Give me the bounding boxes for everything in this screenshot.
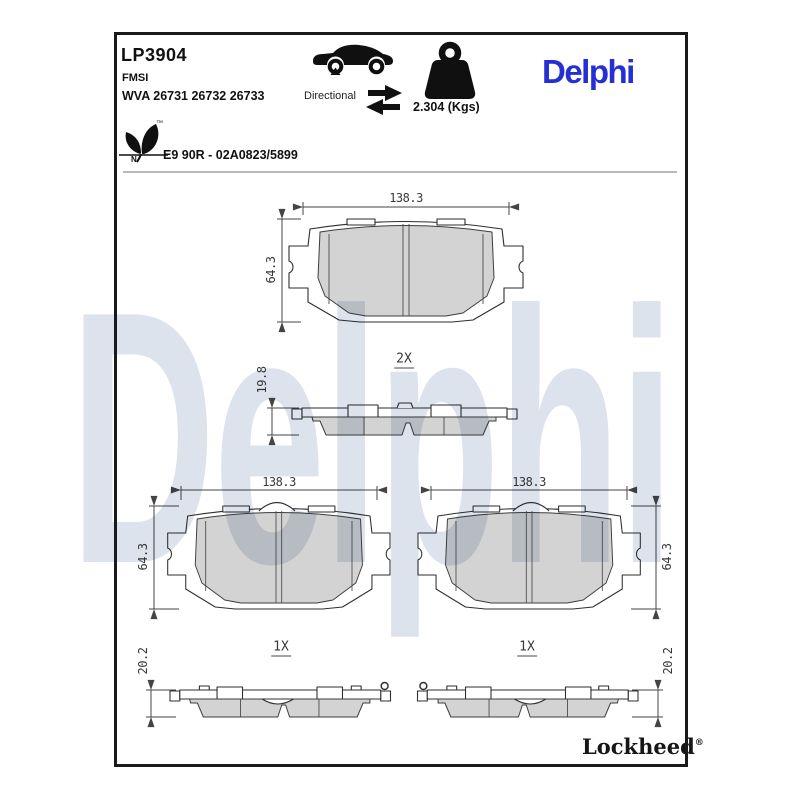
pad-side-view-left [146, 683, 391, 718]
technical-drawing [0, 0, 800, 800]
dim-width-left: 138.3 [262, 475, 296, 489]
dim-height-right: 64.3 [660, 544, 674, 571]
qty-label-right: 1X [517, 640, 537, 657]
dim-height-top: 64.3 [264, 257, 278, 284]
pad-side-view-right [418, 683, 664, 718]
pad-side-view-top [267, 403, 517, 435]
directional-arrows-icon [366, 85, 402, 115]
pad-front-view-top [277, 202, 523, 322]
datasheet-page: LP3904 FMSI WVA 26731 26732 26733 Direct… [0, 0, 800, 800]
eco-leaf-icon [119, 124, 168, 162]
qty-label-top: 2X [394, 352, 414, 369]
car-icon [313, 45, 393, 75]
dim-width-top: 138.3 [389, 191, 423, 205]
qty-label-left: 1X [271, 640, 291, 657]
weight-icon [425, 45, 475, 99]
dim-width-right: 138.3 [512, 475, 546, 489]
dim-thickness-right: 20.2 [661, 648, 675, 675]
pad-front-view-right [418, 486, 661, 609]
dim-height-left: 64.3 [136, 544, 150, 571]
dim-thickness-left: 20.2 [136, 648, 150, 675]
pad-front-view-left [149, 486, 390, 609]
dim-thickness-top: 19.8 [255, 367, 269, 394]
